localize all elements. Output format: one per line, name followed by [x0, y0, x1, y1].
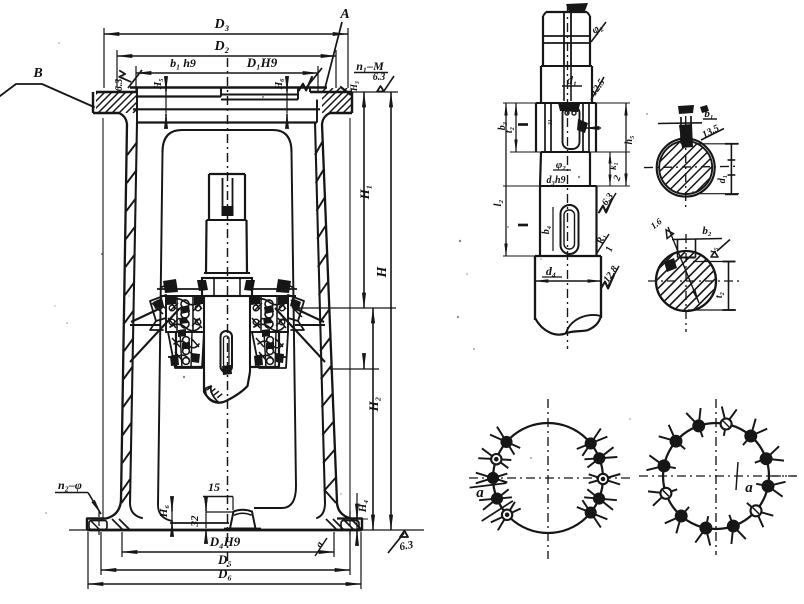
svg-text:H₄: H₄ [357, 500, 369, 514]
svg-text:15: 15 [208, 480, 220, 494]
svg-text:D₁H9: D₁H9 [246, 55, 278, 70]
svg-text:D₄H9: D₄H9 [209, 534, 241, 549]
svg-text:₃₁: ₃₁ [542, 119, 552, 125]
svg-text:d₃h9: d₃h9 [546, 175, 565, 186]
svg-text:D₂: D₂ [214, 39, 230, 54]
svg-text:d₁: d₁ [567, 73, 577, 87]
svg-text:k₁: k₁ [608, 162, 618, 170]
svg-text:H₅: H₅ [153, 78, 164, 90]
svg-text:D₅: D₅ [217, 552, 232, 567]
svg-text:h₅: h₅ [624, 135, 635, 144]
svg-text:b₄: b₄ [541, 226, 552, 235]
svg-text:B: B [32, 66, 42, 81]
svg-text:b₂: b₂ [702, 225, 712, 237]
svg-text:H₆: H₆ [274, 78, 285, 91]
svg-text:b₁ h9: b₁ h9 [170, 56, 196, 70]
svg-text:t₅: t₅ [708, 247, 718, 253]
svg-text:H: H [375, 265, 390, 278]
svg-text:6.3: 6.3 [114, 79, 125, 92]
svg-text:D₆: D₆ [217, 566, 232, 581]
svg-text:H₃: H₃ [349, 81, 359, 92]
svg-text:a: a [476, 485, 484, 501]
svg-text:a: a [745, 480, 753, 496]
svg-text:32: 32 [189, 515, 201, 528]
svg-text:b₁: b₁ [704, 108, 713, 120]
svg-text:φ₂: φ₂ [556, 159, 566, 171]
svg-text:b₃: b₃ [497, 122, 508, 131]
svg-text:n₂–φ: n₂–φ [58, 478, 82, 492]
svg-text:H₁: H₁ [357, 185, 372, 201]
svg-text:d₄: d₄ [546, 264, 556, 278]
svg-text:l₂: l₂ [492, 199, 504, 206]
svg-text:H₂: H₂ [366, 397, 381, 413]
svg-text:H₆: H₆ [158, 505, 170, 519]
svg-text:n₁–M: n₁–M [356, 59, 384, 73]
svg-text:6.3: 6.3 [373, 72, 386, 83]
svg-text:A: A [339, 7, 349, 22]
svg-text:t₂: t₂ [714, 292, 725, 298]
svg-text:D₃: D₃ [214, 17, 230, 32]
svg-text:d₁: d₁ [717, 175, 728, 184]
